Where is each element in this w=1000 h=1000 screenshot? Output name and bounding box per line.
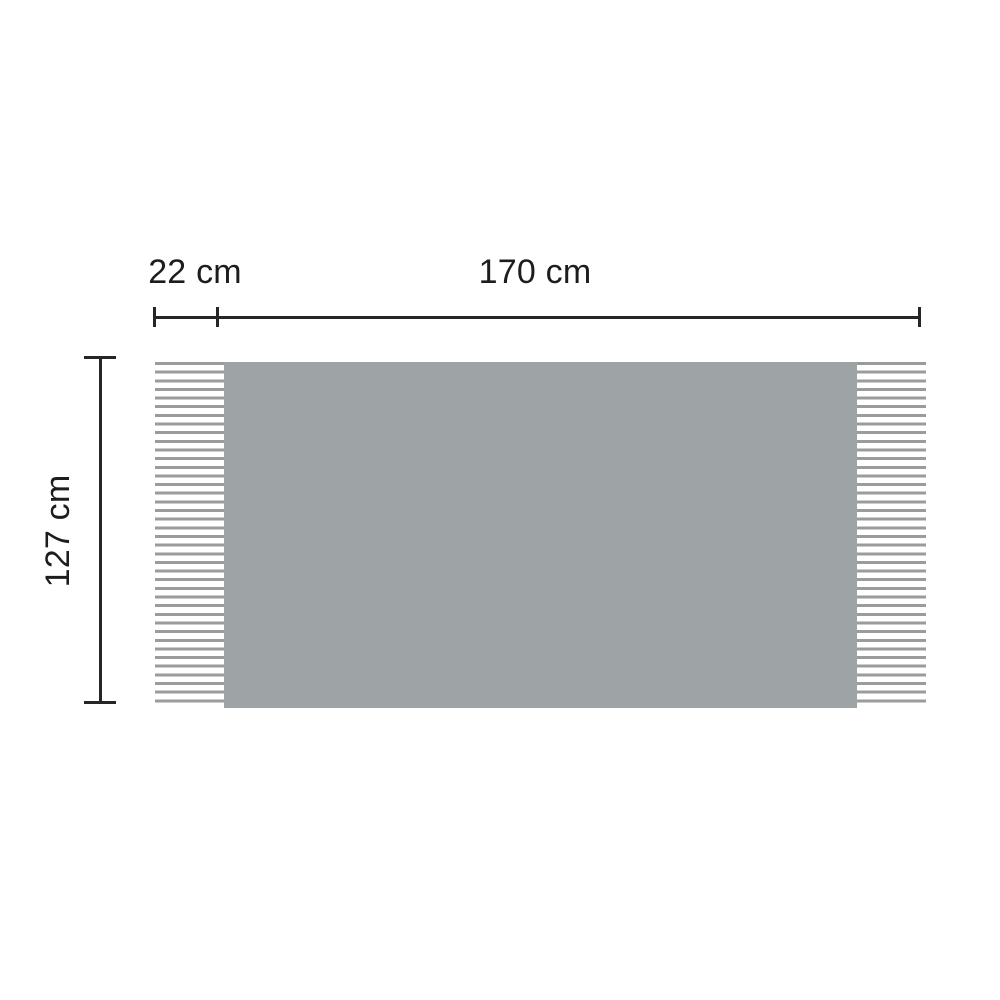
fringe-width-label: 22 cm <box>148 255 242 289</box>
width-dimension-tick-fringe <box>216 307 219 327</box>
blanket-body <box>218 362 862 708</box>
blanket-dimension-diagram: 22 cm 170 cm 127 cm <box>0 0 1000 1000</box>
width-dimension-tick-left <box>153 307 156 327</box>
blanket-fringe-right <box>857 362 926 708</box>
height-dimension-line <box>99 356 102 704</box>
body-width-label: 170 cm <box>479 255 592 289</box>
height-label: 127 cm <box>41 475 75 588</box>
blanket-fringe-left <box>155 362 224 708</box>
width-dimension-tick-right <box>918 307 921 327</box>
width-dimension-line <box>153 316 921 319</box>
height-dimension-tick-top <box>84 356 116 359</box>
height-dimension-tick-bottom <box>84 701 116 704</box>
